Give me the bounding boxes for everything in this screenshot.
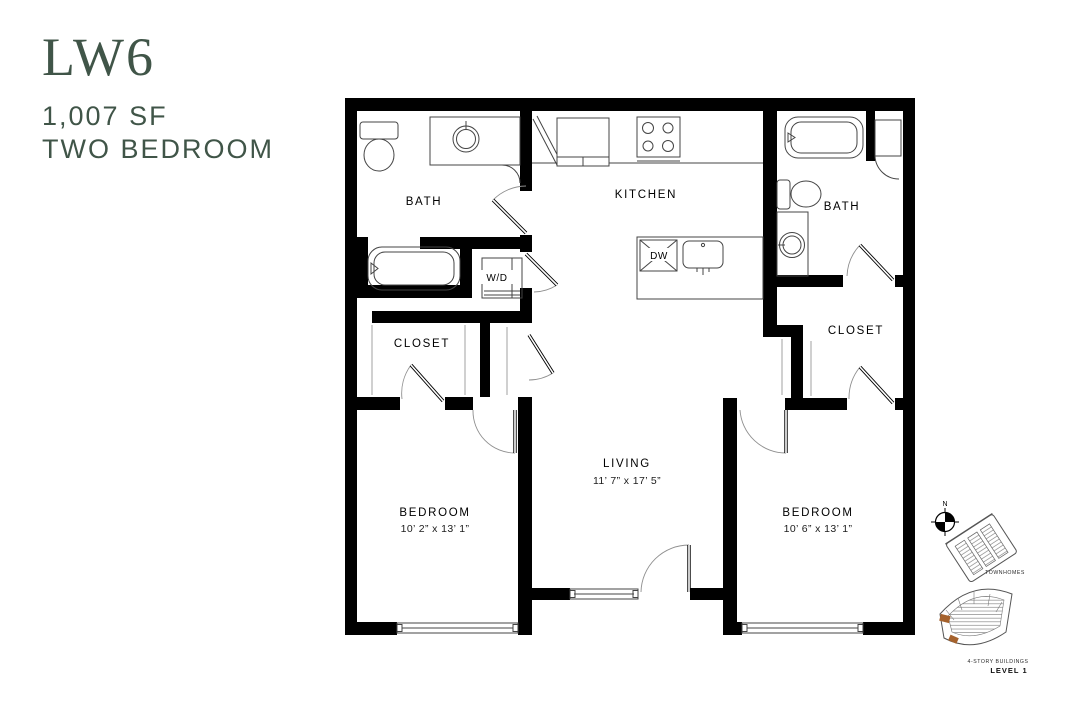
floorplan-page: { "header": { "code": "LW6", "area": "1,…: [0, 0, 1080, 720]
bathtub-icon: [785, 117, 863, 158]
bedroom-left-door: [473, 410, 515, 453]
toilet-icon: [360, 122, 398, 171]
kitchen-fixtures: [532, 116, 763, 299]
svg-text:DW: DW: [650, 251, 668, 262]
level-label: LEVEL 1: [990, 666, 1027, 675]
closet-left-label: CLOSET: [394, 338, 450, 350]
title-block: LW6 1,007 SF TWO BEDROOM: [42, 30, 274, 166]
bathtub-icon: [368, 247, 460, 290]
closet-right-door: [849, 367, 893, 403]
bedroom-right-dims: 10’ 6” x 13’ 1”: [784, 523, 853, 535]
living-label: LIVING: [603, 458, 651, 470]
toilet-icon: [777, 180, 821, 209]
windows: [397, 589, 863, 633]
kitchen-sink-icon: [683, 241, 723, 275]
kitchen-island: [637, 237, 763, 299]
living-slider-window: [570, 589, 638, 599]
plan-area-type: 1,007 SF TWO BEDROOM: [42, 100, 274, 166]
vanity-sink-icon: [777, 212, 808, 276]
hall-linen-door: [529, 335, 553, 380]
walls: [345, 98, 915, 635]
bedroom-left-label: BEDROOM: [399, 507, 470, 519]
svg-text:W/D: W/D: [486, 273, 507, 284]
washer-dryer-door: [526, 254, 557, 292]
bedroom-right-door: [740, 410, 786, 453]
bath-right-door: [847, 245, 893, 280]
floorplan-drawing: BATH KITCHEN BATH W/D DW CLOSET CLOSET L…: [345, 95, 915, 640]
bedroom-left-dims: 10’ 2” x 13’ 1”: [401, 523, 470, 535]
closet-right-label: CLOSET: [828, 325, 884, 337]
sitemap: N TOWNHOMES 4-STORY BUILDINGS LEVEL 1: [918, 496, 1076, 692]
dishwasher-label: DW: [645, 248, 673, 262]
plan-code: LW6: [42, 30, 274, 84]
closet-shelf-lines: [372, 325, 811, 396]
stove-icon: [637, 117, 680, 161]
townhomes-label: TOWNHOMES: [985, 570, 1025, 576]
closet-left-door: [402, 365, 443, 401]
four-story-building-block: [939, 589, 1012, 645]
compass-icon: N: [931, 501, 959, 536]
bedroom-left-window: [397, 623, 518, 633]
bedroom-right-label: BEDROOM: [782, 507, 853, 519]
fridge-icon: [557, 118, 609, 166]
shower-icon: [875, 120, 901, 179]
plan-type: TWO BEDROOM: [42, 134, 274, 164]
washer-dryer-label: W/D: [480, 270, 514, 284]
kitchen-label: KITCHEN: [615, 189, 677, 201]
patio-door: [641, 545, 689, 592]
living-dims: 11’ 7” x 17’ 5”: [593, 475, 661, 487]
compass-north-label: N: [942, 501, 947, 508]
bath-right-fixtures: [777, 117, 901, 276]
bath-left-door: [493, 186, 526, 233]
bath-right-label: BATH: [824, 201, 861, 213]
bath-left-label: BATH: [406, 196, 443, 208]
buildings-label: 4-STORY BUILDINGS: [968, 659, 1029, 665]
vanity-sink-icon: [430, 117, 520, 183]
plan-area: 1,007 SF: [42, 101, 168, 131]
bedroom-right-window: [742, 623, 863, 633]
